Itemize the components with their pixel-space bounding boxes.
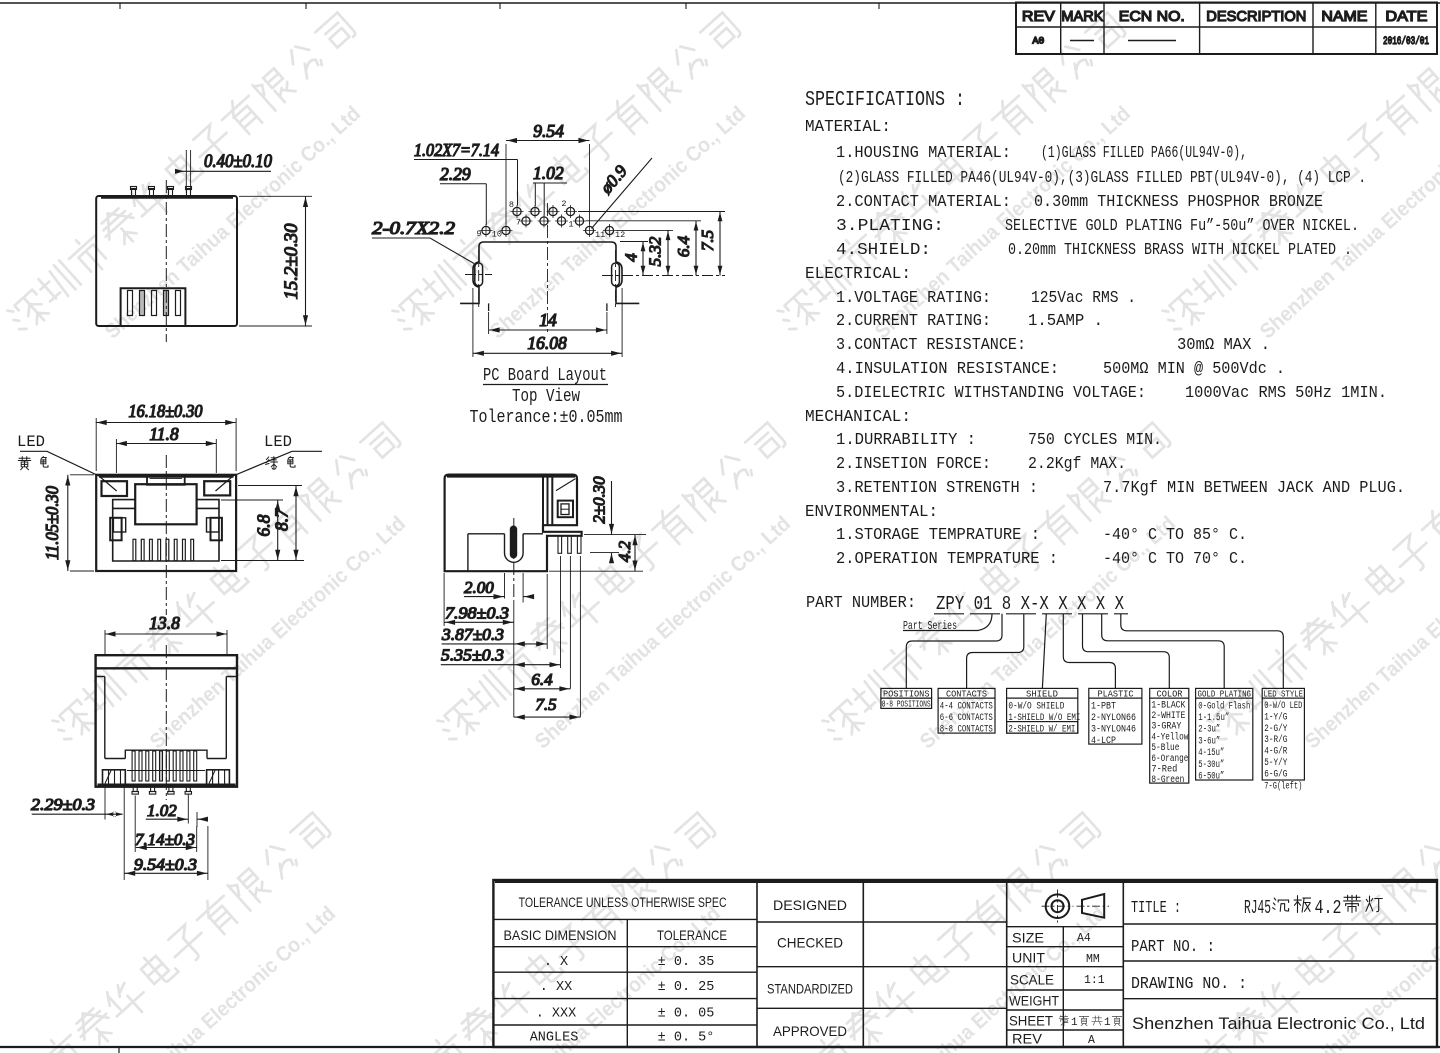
svg-text:8-8 POSITIONS: 8-8 POSITIONS xyxy=(882,699,931,709)
svg-text:0-W/O LED: 0-W/O LED xyxy=(1264,700,1302,712)
svg-text:6.8: 6.8 xyxy=(254,514,274,536)
svg-text:0.30mm THICKNESS PHOSPHOR BRON: 0.30mm THICKNESS PHOSPHOR BRONZE xyxy=(1034,193,1323,212)
svg-text:-40° C TO 70° C.: -40° C TO 70° C. xyxy=(1103,550,1247,569)
svg-text:Tolerance:±0.05mm: Tolerance:±0.05mm xyxy=(470,408,623,428)
svg-text:2-SHIELD W/ EMI: 2-SHIELD W/ EMI xyxy=(1008,724,1075,736)
svg-text:A: A xyxy=(1088,1034,1095,1047)
svg-text:16.18±0.30: 16.18±0.30 xyxy=(129,401,203,421)
svg-text:7-G(left): 7-G(left) xyxy=(1264,781,1302,793)
svg-text:A4: A4 xyxy=(1077,932,1091,945)
svg-text:11.8: 11.8 xyxy=(149,424,179,444)
svg-text:11: 11 xyxy=(595,230,605,240)
svg-text:LED STYLE: LED STYLE xyxy=(1264,688,1304,699)
svg-text:ENVIRONMENTAL:: ENVIRONMENTAL: xyxy=(805,503,938,522)
svg-text:UNIT: UNIT xyxy=(1012,951,1045,966)
svg-text:4-Yellow: 4-Yellow xyxy=(1151,731,1188,743)
svg-text:1-1.5u”: 1-1.5u” xyxy=(1198,712,1229,724)
svg-text:4-15u”: 4-15u” xyxy=(1198,747,1224,759)
svg-text:2.2Kgf MAX.: 2.2Kgf MAX. xyxy=(1028,455,1126,474)
svg-text:14: 14 xyxy=(539,310,557,330)
svg-text:4: 4 xyxy=(622,253,641,262)
svg-text:DRAWING NO. :: DRAWING NO. : xyxy=(1131,975,1247,994)
svg-text:PART NO. :: PART NO. : xyxy=(1131,938,1215,957)
svg-text:9.54±0.3: 9.54±0.3 xyxy=(134,855,197,874)
svg-text:5-30u”: 5-30u” xyxy=(1198,759,1224,771)
svg-text:1-SHIELD W/O EMI: 1-SHIELD W/O EMI xyxy=(1008,712,1080,724)
svg-text:. XX: . XX xyxy=(540,980,572,995)
svg-text:ZPY 01 8 X-X X X X X: ZPY 01 8 X-X X X X X xyxy=(936,593,1124,615)
svg-text:PLASTIC: PLASTIC xyxy=(1098,688,1134,699)
svg-text:5.35±0.3: 5.35±0.3 xyxy=(441,646,504,665)
svg-text:SHIELD: SHIELD xyxy=(1026,688,1058,699)
svg-text:1.5AMP .: 1.5AMP . xyxy=(1028,312,1103,331)
svg-text:MM: MM xyxy=(1086,953,1100,966)
svg-text:CONTACTS: CONTACTS xyxy=(946,688,987,699)
svg-text:MATERIAL:: MATERIAL: xyxy=(805,118,891,137)
svg-text:11.05±0.30: 11.05±0.30 xyxy=(42,486,62,560)
svg-text:2.CONTACT MATERIAL:: 2.CONTACT MATERIAL: xyxy=(836,193,1011,212)
svg-text:RJ45: RJ45 xyxy=(1244,897,1271,919)
svg-text:0.20mm THICKNESS BRASS WITH NI: 0.20mm THICKNESS BRASS WITH NICKEL PLATE… xyxy=(1008,241,1352,260)
svg-text:2-3u”: 2-3u” xyxy=(1198,724,1220,736)
svg-text:1.02: 1.02 xyxy=(533,163,564,183)
svg-text:SHEET: SHEET xyxy=(1009,1014,1053,1029)
svg-text:2-G/Y: 2-G/Y xyxy=(1264,723,1288,735)
svg-text:3-GRAY: 3-GRAY xyxy=(1151,722,1181,733)
svg-text:2±0.30: 2±0.30 xyxy=(590,476,609,523)
svg-text:0.40±0.10: 0.40±0.10 xyxy=(204,152,273,172)
svg-text:ECN NO.: ECN NO. xyxy=(1119,8,1185,25)
svg-text:2-NYLON66: 2-NYLON66 xyxy=(1091,712,1136,724)
svg-text:5-Blue: 5-Blue xyxy=(1151,742,1179,754)
svg-text:8.7: 8.7 xyxy=(272,508,292,531)
svg-text:ELECTRICAL:: ELECTRICAL: xyxy=(805,265,911,284)
svg-text:TOLERANCE UNLESS OTHERWISE SPE: TOLERANCE UNLESS OTHERWISE SPEC xyxy=(519,895,727,910)
svg-text:LED: LED xyxy=(264,433,292,451)
svg-text:1: 1 xyxy=(1104,1017,1111,1029)
svg-text:2.INSETION FORCE:: 2.INSETION FORCE: xyxy=(836,455,991,474)
svg-text:2.29±0.3: 2.29±0.3 xyxy=(31,795,95,814)
svg-text:3-6u”: 3-6u” xyxy=(1198,735,1220,747)
svg-text:7-Red: 7-Red xyxy=(1151,764,1177,776)
svg-text:1-PBT: 1-PBT xyxy=(1091,700,1116,712)
svg-text:3-NYLON46: 3-NYLON46 xyxy=(1091,724,1136,736)
svg-text:13.8: 13.8 xyxy=(149,613,180,633)
svg-text:2.29: 2.29 xyxy=(440,164,471,184)
svg-text:3-R/G: 3-R/G xyxy=(1264,734,1287,746)
svg-text:6.4: 6.4 xyxy=(531,670,553,689)
svg-text:2.00: 2.00 xyxy=(464,578,494,597)
svg-text:2-WHITE: 2-WHITE xyxy=(1151,711,1185,722)
svg-text:7.5: 7.5 xyxy=(698,230,717,251)
svg-text:1-Y/G: 1-Y/G xyxy=(1264,711,1287,723)
svg-text:1-BLACK: 1-BLACK xyxy=(1151,700,1185,711)
svg-text:1.DURRABILITY :: 1.DURRABILITY : xyxy=(836,431,976,450)
svg-text:8-Green: 8-Green xyxy=(1151,775,1184,786)
svg-text:4.2: 4.2 xyxy=(615,540,634,562)
svg-text:ø0.9: ø0.9 xyxy=(595,161,631,198)
svg-text:3.PLATING:: 3.PLATING: xyxy=(836,217,944,236)
svg-text:LED: LED xyxy=(17,433,45,451)
svg-text:2: 2 xyxy=(561,199,566,209)
svg-text:ANGLES: ANGLES xyxy=(530,1031,579,1046)
svg-text:(1)GLASS FILLED PA66(UL94V-0),: (1)GLASS FILLED PA66(UL94V-0), xyxy=(1041,144,1247,163)
svg-text:6-Orange: 6-Orange xyxy=(1151,754,1188,765)
svg-text:± 0. 35: ± 0. 35 xyxy=(658,955,715,970)
svg-text:APPROVED: APPROVED xyxy=(773,1023,847,1039)
svg-text:750 CYCLES MIN.: 750 CYCLES MIN. xyxy=(1028,431,1162,450)
svg-text:SIZE: SIZE xyxy=(1012,931,1044,946)
svg-text:1: 1 xyxy=(568,220,573,230)
svg-text:± 0. 5°: ± 0. 5° xyxy=(658,1031,715,1046)
svg-text:1000Vac RMS 50Hz 1MIN.: 1000Vac RMS 50Hz 1MIN. xyxy=(1185,384,1387,403)
svg-text:3.RETENTION STRENGTH :: 3.RETENTION STRENGTH : xyxy=(836,479,1038,498)
svg-text:4.2: 4.2 xyxy=(1315,897,1342,919)
svg-text:2.OPERATION TEMPRATURE :: 2.OPERATION TEMPRATURE : xyxy=(836,550,1058,569)
svg-text:500MΩ MIN @ 500Vdc .: 500MΩ MIN @ 500Vdc . xyxy=(1103,360,1285,379)
svg-text:MARK: MARK xyxy=(1061,8,1103,25)
svg-text:7.7Kgf MIN BETWEEN JACK AND PL: 7.7Kgf MIN BETWEEN JACK AND PLUG. xyxy=(1103,479,1405,498)
svg-text:GOLD PLATING: GOLD PLATING xyxy=(1198,688,1252,699)
svg-text:0-W/O SHIELD: 0-W/O SHIELD xyxy=(1008,700,1064,712)
svg-text:MECHANICAL:: MECHANICAL: xyxy=(805,408,911,427)
svg-text:8-8 CONTACTS: 8-8 CONTACTS xyxy=(940,724,993,736)
svg-text:POSITIONS: POSITIONS xyxy=(883,688,930,699)
svg-text:4.INSULATION RESISTANCE:: 4.INSULATION RESISTANCE: xyxy=(836,360,1059,379)
svg-text:16.08: 16.08 xyxy=(527,333,567,353)
svg-text:CHECKED: CHECKED xyxy=(777,935,843,951)
svg-text:15.2±0.30: 15.2±0.30 xyxy=(281,223,302,299)
svg-text:. XXX: . XXX xyxy=(536,1007,577,1022)
svg-text:2016/03/01: 2016/03/01 xyxy=(1383,36,1429,48)
svg-text:Shenzhen Taihua Electronic Co.: Shenzhen Taihua Electronic Co., Ltd xyxy=(1132,1015,1425,1033)
svg-text:± 0. 05: ± 0. 05 xyxy=(658,1007,715,1022)
svg-text:4.SHIELD:: 4.SHIELD: xyxy=(836,241,931,260)
svg-text:DESCRIPTION: DESCRIPTION xyxy=(1206,8,1306,25)
svg-text:Shenzhen Taihua Electronic Co.: Shenzhen Taihua Electronic Co., Ltd xyxy=(486,102,750,343)
svg-text:4-4 CONTACTS: 4-4 CONTACTS xyxy=(940,700,993,712)
svg-text:4-G/R: 4-G/R xyxy=(1264,746,1288,758)
svg-text:3.CONTACT RESISTANCE:: 3.CONTACT RESISTANCE: xyxy=(836,336,1026,355)
svg-text:7.5: 7.5 xyxy=(535,695,556,714)
svg-text:(2)GLASS FILLED PA46(UL94V-0),: (2)GLASS FILLED PA46(UL94V-0),(3)GLASS F… xyxy=(838,169,1366,188)
svg-text:125Vac RMS .: 125Vac RMS . xyxy=(1031,289,1136,308)
svg-text:1.02X7=7.14: 1.02X7=7.14 xyxy=(414,140,499,160)
svg-text:REV: REV xyxy=(1022,8,1055,25)
svg-text:5-Y/Y: 5-Y/Y xyxy=(1264,757,1288,769)
svg-text:6-6 CONTACTS: 6-6 CONTACTS xyxy=(940,712,993,724)
svg-text:0-Gold Flash: 0-Gold Flash xyxy=(1198,700,1250,712)
svg-text:STANDARDIZED: STANDARDIZED xyxy=(767,981,853,997)
svg-text:. X: . X xyxy=(544,955,568,970)
svg-text:12: 12 xyxy=(615,230,625,240)
svg-text:± 0. 25: ± 0. 25 xyxy=(658,980,715,995)
svg-text:PC Board Layout: PC Board Layout xyxy=(483,366,607,386)
svg-text:DESIGNED: DESIGNED xyxy=(773,897,847,913)
svg-text:NAME: NAME xyxy=(1321,8,1367,25)
svg-text:1.STORAGE TEMPRATURE :: 1.STORAGE TEMPRATURE : xyxy=(836,526,1040,545)
svg-text:BASIC DIMENSION: BASIC DIMENSION xyxy=(504,927,617,943)
svg-text:8: 8 xyxy=(509,200,514,210)
svg-text:A0: A0 xyxy=(1032,37,1044,48)
svg-text:4-LCP: 4-LCP xyxy=(1091,735,1116,747)
svg-text:REV: REV xyxy=(1012,1032,1042,1047)
svg-text:5.32: 5.32 xyxy=(646,236,665,266)
svg-text:6.4: 6.4 xyxy=(674,235,693,257)
svg-text:-40° C TO 85° C.: -40° C TO 85° C. xyxy=(1103,526,1247,545)
svg-text:7.98±0.3: 7.98±0.3 xyxy=(445,604,509,623)
svg-text:Top View: Top View xyxy=(512,387,580,407)
svg-text:7: 7 xyxy=(516,218,521,228)
svg-text:2-0.7X2.2: 2-0.7X2.2 xyxy=(372,218,455,238)
svg-text:COLOR: COLOR xyxy=(1157,688,1183,699)
svg-text:SELECTIVE GOLD PLATING Fu”-50u: SELECTIVE GOLD PLATING Fu”-50u” OVER NIC… xyxy=(1005,217,1359,236)
svg-text:WEIGHT: WEIGHT xyxy=(1009,994,1059,1009)
svg-text:30mΩ MAX .: 30mΩ MAX . xyxy=(1177,336,1270,355)
svg-text:SCALE: SCALE xyxy=(1010,973,1054,988)
svg-text:TITLE :: TITLE : xyxy=(1131,899,1181,918)
svg-text:6-50u”: 6-50u” xyxy=(1198,771,1224,783)
svg-text:DATE: DATE xyxy=(1385,8,1427,25)
svg-text:TOLERANCE: TOLERANCE xyxy=(657,927,727,943)
svg-text:SPECIFICATIONS :: SPECIFICATIONS : xyxy=(805,89,965,112)
svg-text:2.CURRENT RATING:: 2.CURRENT RATING: xyxy=(836,312,991,331)
svg-text:Shenzhen Taihua Electronic Co.: Shenzhen Taihua Electronic Co., Ltd xyxy=(76,902,340,1053)
svg-text:1.02: 1.02 xyxy=(147,801,177,820)
svg-text:1: 1 xyxy=(1071,1017,1078,1029)
svg-text:3.87±0.3: 3.87±0.3 xyxy=(441,625,504,644)
svg-text:1.HOUSING MATERIAL:: 1.HOUSING MATERIAL: xyxy=(836,144,1011,163)
svg-text:1.VOLTAGE RATING:: 1.VOLTAGE RATING: xyxy=(836,289,991,308)
svg-text:9.54: 9.54 xyxy=(533,121,564,141)
svg-text:10: 10 xyxy=(492,230,502,240)
svg-text:PART NUMBER:: PART NUMBER: xyxy=(806,594,916,613)
svg-text:1:1: 1:1 xyxy=(1084,974,1105,987)
svg-text:6-G/G: 6-G/G xyxy=(1264,768,1287,780)
svg-text:5.DIELECTRIC WITHSTANDING VOLT: 5.DIELECTRIC WITHSTANDING VOLTAGE: xyxy=(836,384,1146,403)
svg-text:9: 9 xyxy=(476,229,481,239)
